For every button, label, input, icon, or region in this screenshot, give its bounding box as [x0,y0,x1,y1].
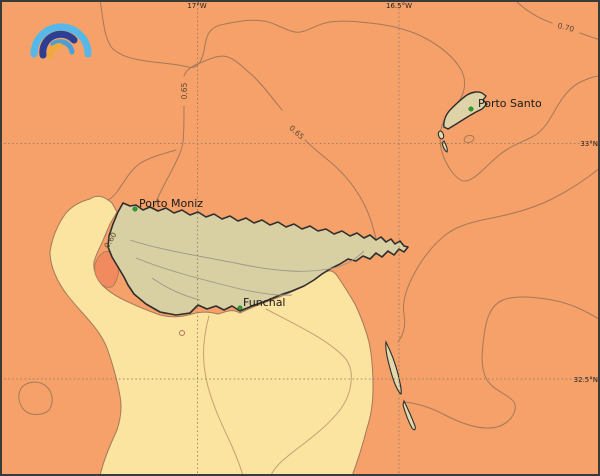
funchal-marker [238,306,242,310]
porto-santo-marker [469,107,473,111]
lon-label-17w: 17°W [187,2,206,10]
porto-moniz-label: Porto Moniz [139,197,203,210]
lat-label-33n: 33°N [580,140,598,148]
contour-label-065-west: 0.65 [180,82,189,99]
porto-moniz-marker [133,207,137,211]
lat-label-325n: 32.5°N [574,376,598,384]
lon-label-165w: 16.5°W [386,2,412,10]
map-canvas: 17°W 16.5°W 33°N 32.5°N 0.70 0.65 0.65 0… [0,0,600,476]
porto-santo-label: Porto Santo [478,97,542,110]
map-frame: 17°W 16.5°W 33°N 32.5°N 0.70 0.65 0.65 0… [0,0,600,476]
funchal-label: Funchal [243,296,286,309]
